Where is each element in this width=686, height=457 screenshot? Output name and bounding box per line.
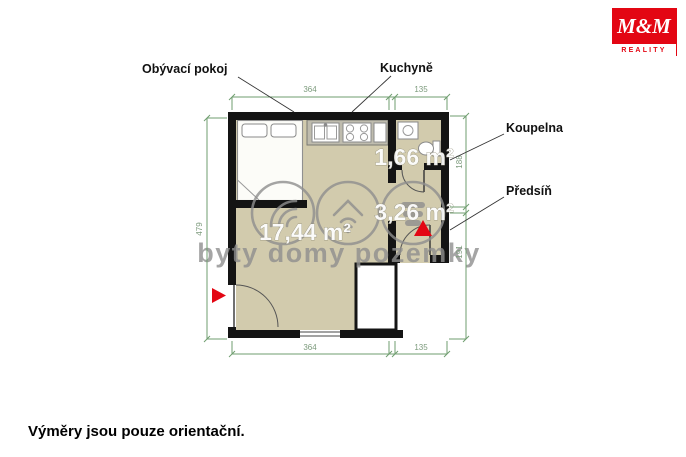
dim-bottom-side: 135 [414, 343, 428, 352]
dimension-top [229, 94, 450, 110]
dim-bottom-main: 364 [303, 343, 317, 352]
bed-icon [238, 121, 303, 201]
kitchen-counter-icon [307, 120, 388, 145]
wall-top [228, 112, 449, 120]
logo-main-block: M&M REALITY [612, 8, 676, 56]
logo-brand-text: M&M [612, 8, 676, 44]
sink-icon [312, 123, 339, 142]
bathroom-label: Koupelna [506, 121, 564, 135]
floor-plan-drawing: byty domy pozemky 17,44 m² 1,66 m² 3,26 … [0, 0, 686, 457]
living-room-label: Obývací pokoj [142, 62, 227, 76]
kitchen-label: Kuchyně [380, 61, 433, 75]
fridge-icon [374, 123, 386, 142]
floor-plan-page: M&M REALITY [0, 0, 686, 457]
pillow-icon [271, 124, 296, 137]
disclaimer-text: Výměry jsou pouze orientační. [28, 423, 245, 440]
dim-top-side: 135 [414, 85, 428, 94]
dim-left-height: 479 [195, 222, 204, 236]
dim-top-main: 364 [303, 85, 317, 94]
hallway-area: 3,26 m² [374, 199, 454, 225]
balcony-marker-triangle [212, 288, 226, 303]
pillow-icon [242, 124, 267, 137]
logo-subtitle-text: REALITY [612, 44, 676, 56]
dimension-left [204, 115, 227, 342]
dim-right-lower: 191 [455, 245, 464, 259]
hallway-label: Předsíň [506, 184, 552, 198]
mm-reality-logo: M&M REALITY [612, 8, 686, 56]
bathroom-area: 1,66 m² [374, 144, 454, 170]
closet-icon [356, 264, 396, 330]
living-room-area: 17,44 m² [259, 219, 351, 245]
stove-icon [343, 123, 371, 142]
window-icon [300, 330, 340, 338]
wall-bottom-left [228, 330, 300, 338]
washing-machine-icon [398, 122, 418, 139]
logo-side-strip [677, 8, 686, 56]
